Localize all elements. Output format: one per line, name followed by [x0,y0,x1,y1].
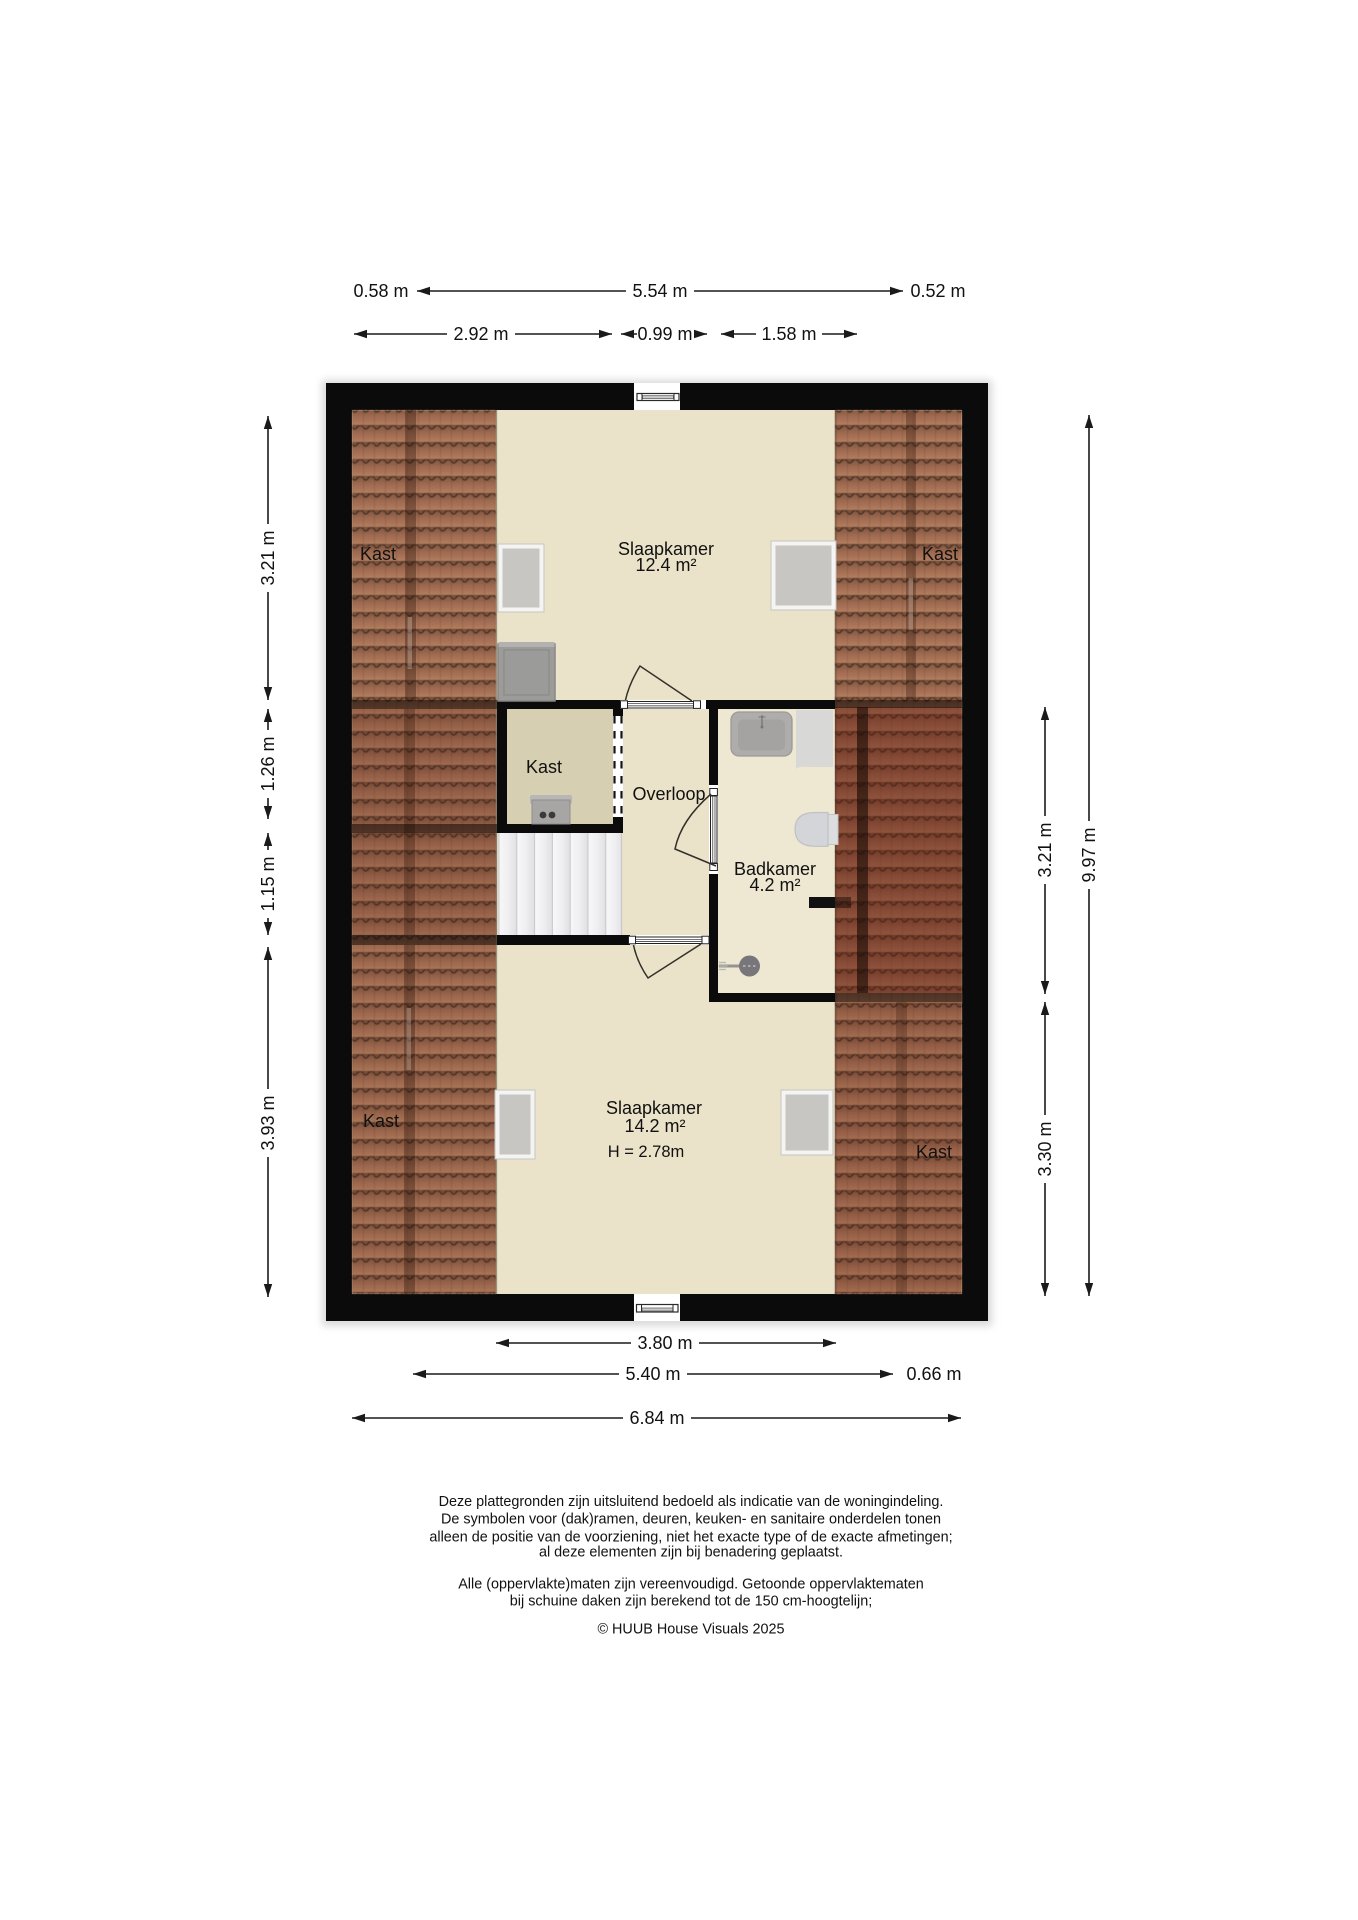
svg-text:6.84 m: 6.84 m [629,1408,684,1428]
svg-text:De symbolen voor (dak)ramen, d: De symbolen voor (dak)ramen, deuren, keu… [441,1512,941,1528]
svg-text:5.54 m: 5.54 m [632,281,687,301]
svg-text:0.99 m: 0.99 m [637,324,692,344]
svg-text:Alle (oppervlakte)maten zijn v: Alle (oppervlakte)maten zijn vereenvoudi… [458,1577,924,1593]
svg-text:bij schuine daken zijn bereken: bij schuine daken zijn berekend tot de 1… [510,1594,872,1610]
svg-text:0.58 m: 0.58 m [353,281,408,301]
svg-text:3.93 m: 3.93 m [258,1095,278,1150]
svg-text:0.52 m: 0.52 m [910,281,965,301]
svg-text:3.21 m: 3.21 m [1035,822,1055,877]
svg-text:1.58 m: 1.58 m [761,324,816,344]
svg-text:Kast: Kast [922,544,958,564]
svg-text:3.30 m: 3.30 m [1035,1121,1055,1176]
svg-text:Overloop: Overloop [632,784,705,804]
svg-text:1.26 m: 1.26 m [258,736,278,791]
svg-text:0.66 m: 0.66 m [906,1364,961,1384]
svg-text:3.80 m: 3.80 m [637,1333,692,1353]
svg-text:4.2 m²: 4.2 m² [749,875,800,895]
svg-text:Deze plattegronden zijn uitslu: Deze plattegronden zijn uitsluitend bedo… [439,1494,944,1510]
svg-text:Kast: Kast [363,1111,399,1131]
svg-text:al deze elementen zijn bij ben: al deze elementen zijn bij benadering ge… [539,1545,843,1561]
svg-text:12.4 m²: 12.4 m² [635,555,696,575]
svg-text:alleen de positie van de voorz: alleen de positie van de voorziening, ni… [429,1530,952,1546]
svg-text:1.15 m: 1.15 m [258,856,278,911]
svg-text:5.40 m: 5.40 m [625,1364,680,1384]
svg-text:Kast: Kast [360,544,396,564]
svg-text:© HUUB House Visuals 2025: © HUUB House Visuals 2025 [597,1622,784,1638]
svg-text:14.2 m²: 14.2 m² [624,1116,685,1136]
svg-text:Kast: Kast [526,757,562,777]
svg-text:Kast: Kast [916,1142,952,1162]
svg-text:H = 2.78m: H = 2.78m [608,1143,685,1161]
svg-text:Slaapkamer: Slaapkamer [606,1098,702,1118]
svg-text:3.21 m: 3.21 m [258,530,278,585]
svg-text:2.92 m: 2.92 m [453,324,508,344]
svg-text:9.97 m: 9.97 m [1079,827,1099,882]
